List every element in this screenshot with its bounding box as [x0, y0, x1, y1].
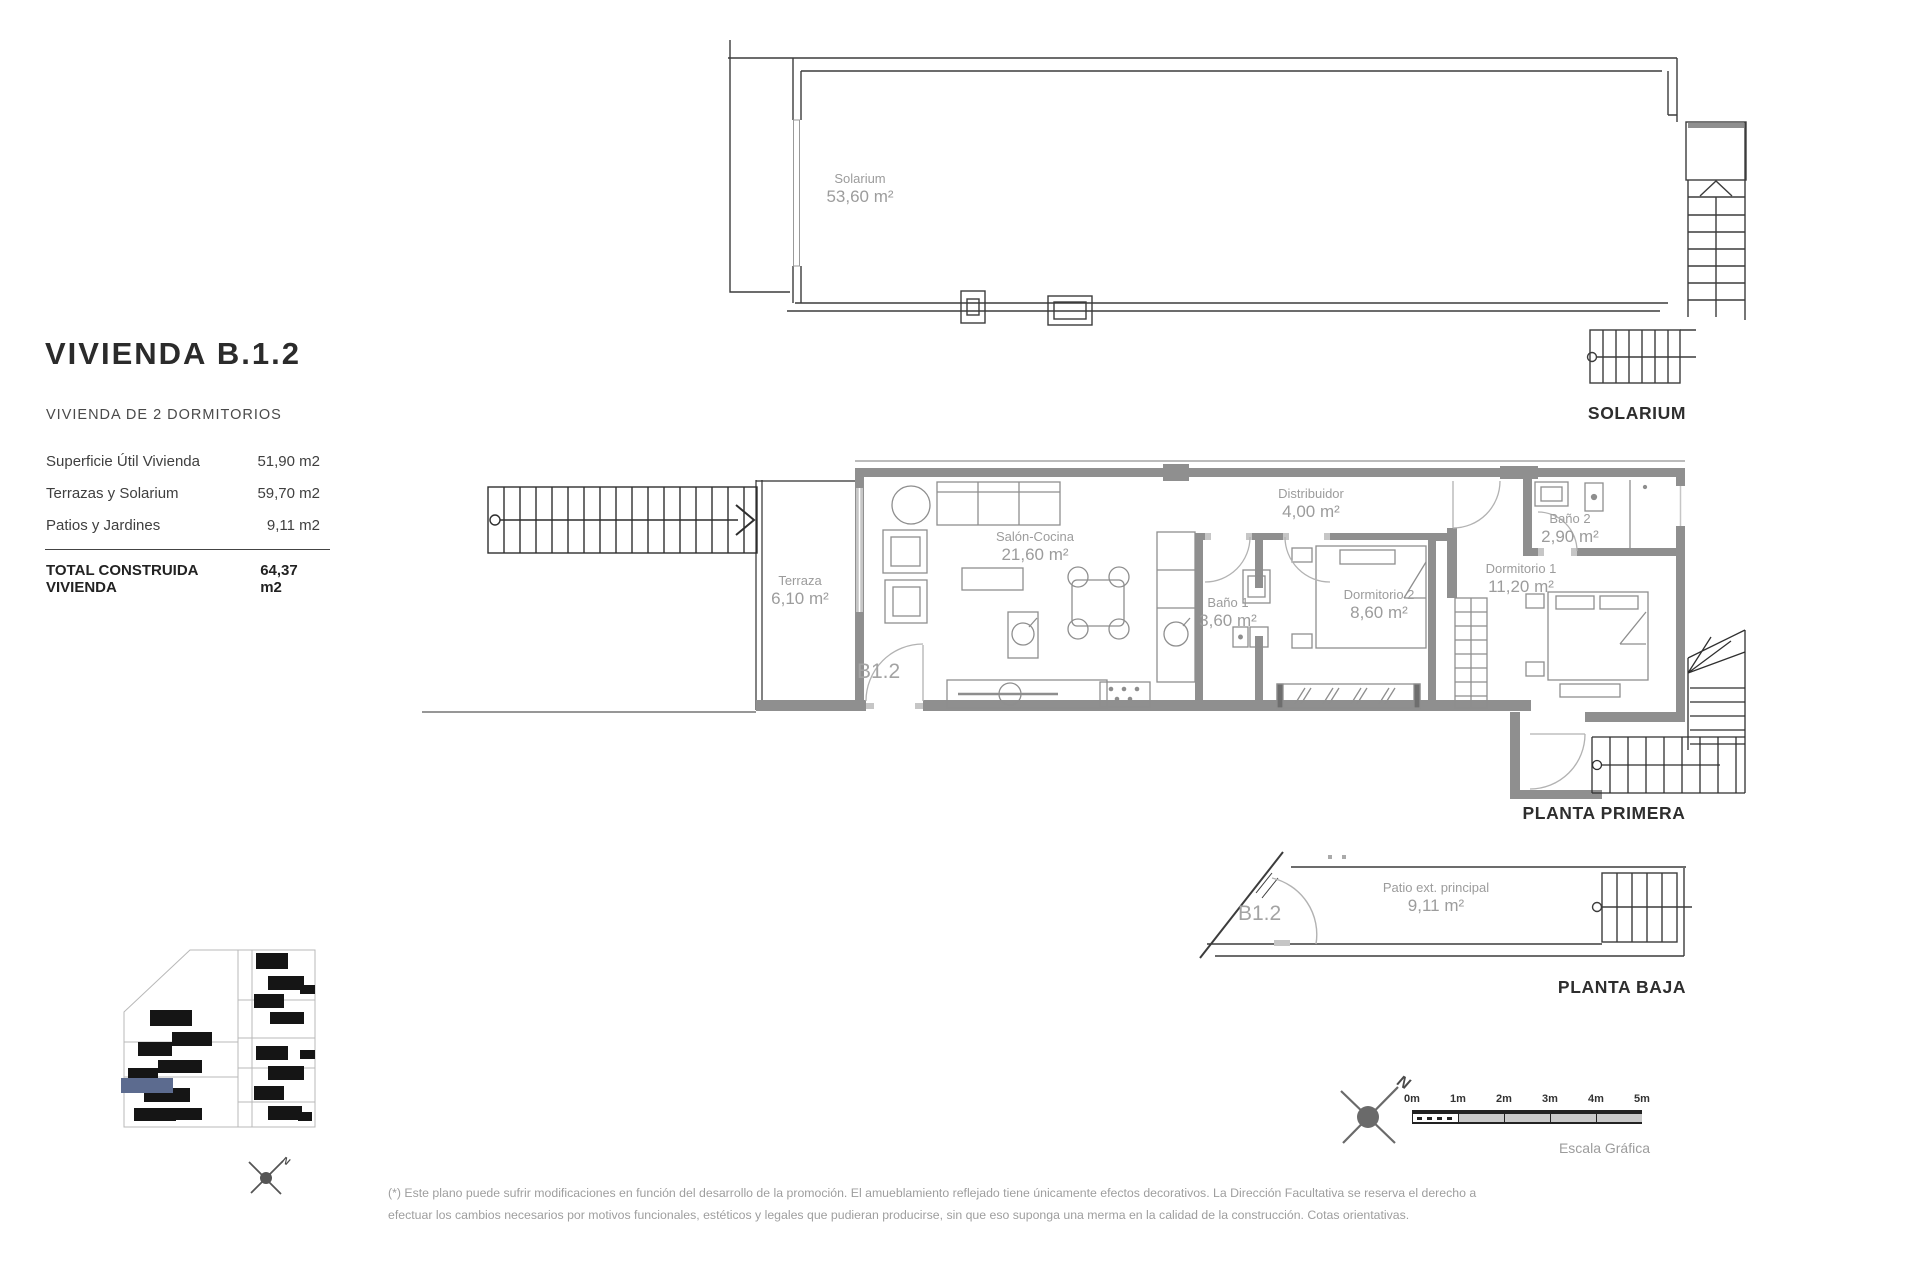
total-row-label: TOTAL CONSTRUIDA VIVIENDA: [46, 562, 260, 596]
page-title: VIVIENDA B.1.2: [45, 336, 301, 372]
north-label: N: [1394, 1073, 1413, 1094]
footnote-line1: (*) Este plano puede sufrir modificacion…: [388, 1186, 1476, 1200]
scale-tick: 1m: [1450, 1093, 1466, 1105]
footnote-line2: efectuar los cambios necesarios por moti…: [388, 1208, 1409, 1222]
scale-bar-graphic: [1412, 1110, 1642, 1123]
surface-row-label: Terrazas y Solarium: [46, 485, 179, 502]
heading-planta-baja: PLANTA BAJA: [1558, 977, 1686, 998]
total-separator: [45, 549, 330, 550]
site-plan-minimap: [121, 950, 315, 1127]
room-label-bano2: Baño 2 2,90 m²: [1541, 512, 1599, 546]
unit-label-planta-primera: B1.2: [857, 660, 900, 684]
room-label-distribuidor: Distribuidor 4,00 m²: [1278, 487, 1344, 521]
heading-planta-primera: PLANTA PRIMERA: [1523, 803, 1686, 824]
surface-row-value: 59,70 m2: [257, 485, 320, 502]
room-label-solarium: Solarium 53,60 m²: [826, 172, 893, 206]
surface-row-value: 9,11 m2: [267, 517, 320, 534]
heading-solarium: SOLARIUM: [1588, 403, 1686, 424]
scale-tick: 0m: [1404, 1093, 1420, 1105]
scale-tick: 2m: [1496, 1093, 1512, 1105]
scale-tick: 3m: [1542, 1093, 1558, 1105]
room-label-dormitorio1: Dormitorio 1 11,20 m²: [1486, 562, 1557, 596]
floorplan-canvas: N N: [0, 0, 1920, 1280]
surface-row-label: Patios y Jardines: [46, 517, 160, 534]
north-compass-icon: N: [1341, 1073, 1413, 1143]
highlighted-unit: [121, 1078, 173, 1093]
site-north-compass-icon: N: [249, 1155, 292, 1194]
room-label-terraza: Terraza 6,10 m²: [771, 574, 829, 608]
scale-tick: 4m: [1588, 1093, 1604, 1105]
doors: [866, 481, 1585, 789]
solarium-plan: [728, 40, 1746, 383]
site-north-label: N: [280, 1155, 292, 1169]
unit-label-planta-baja: B1.2: [1238, 902, 1281, 926]
room-label-patio: Patio ext. principal 9,11 m²: [1383, 881, 1489, 915]
total-row-value: 64,37 m2: [260, 562, 320, 596]
total-row: TOTAL CONSTRUIDA VIVIENDA 64,37 m2: [46, 562, 320, 596]
surface-row: Patios y Jardines 9,11 m2: [46, 517, 320, 534]
room-label-bano1: Baño 1 3,60 m²: [1199, 596, 1257, 630]
room-label-salon-cocina: Salón-Cocina 21,60 m²: [996, 530, 1074, 564]
surface-row-value: 51,90 m2: [257, 453, 320, 470]
stair-right: [1592, 630, 1745, 793]
room-label-dormitorio2: Dormitorio 2 8,60 m²: [1344, 588, 1415, 622]
scale-bar-caption: Escala Gráfica: [1559, 1140, 1650, 1156]
surface-row: Superficie Útil Vivienda 51,90 m2: [46, 453, 320, 470]
page-subtitle: VIVIENDA DE 2 DORMITORIOS: [46, 407, 282, 423]
surface-row: Terrazas y Solarium 59,70 m2: [46, 485, 320, 502]
surface-row-label: Superficie Útil Vivienda: [46, 453, 200, 470]
scale-tick: 5m: [1634, 1093, 1650, 1105]
